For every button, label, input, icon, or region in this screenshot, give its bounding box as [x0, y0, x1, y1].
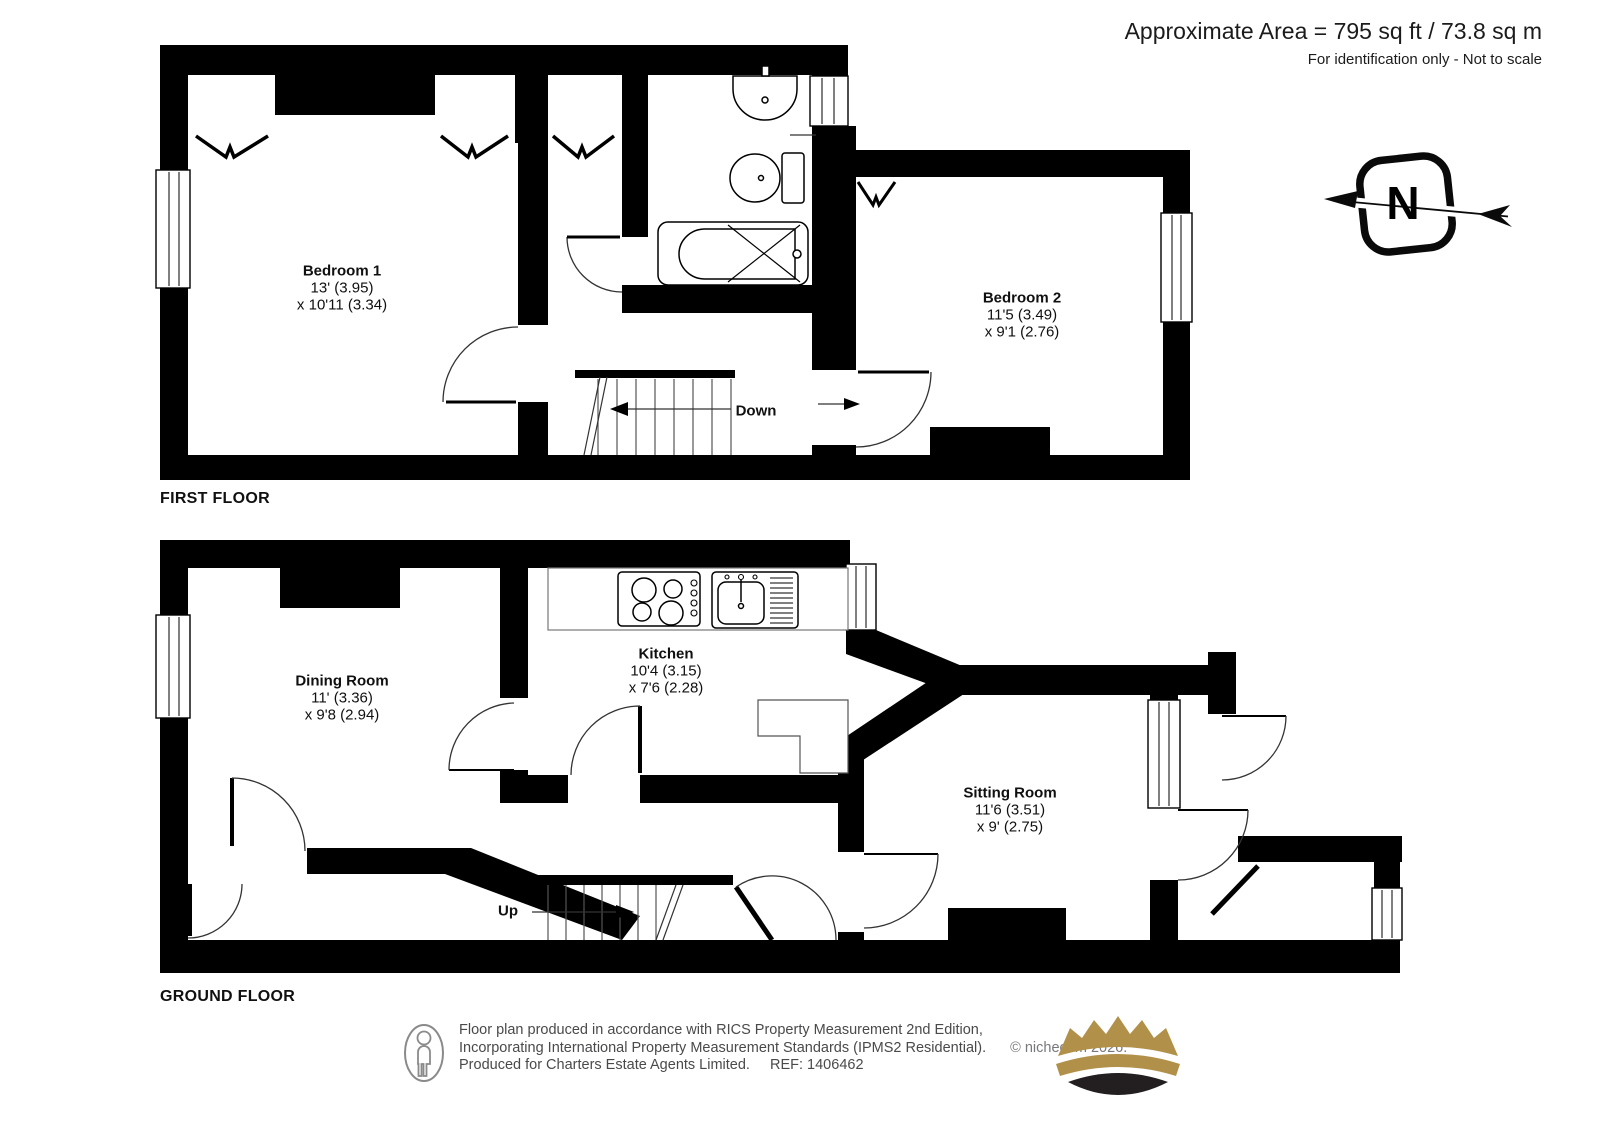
footer-line2: Incorporating International Property Mea… — [459, 1040, 1127, 1058]
room-name: Sitting Room — [963, 785, 1056, 802]
room-dimensions: 11' (3.36) — [295, 690, 388, 707]
stairs-up-label: Up — [498, 903, 518, 920]
door-porch — [1212, 866, 1258, 914]
room-dimensions: x 9' (2.75) — [963, 819, 1056, 836]
footer: Floor plan produced in accordance with R… — [402, 1022, 1127, 1084]
kitchen-step — [758, 700, 848, 773]
ground-floor-plan — [156, 540, 1402, 973]
approximate-area: Approximate Area = 795 sq ft / 73.8 sq m — [1125, 18, 1542, 45]
room-name: Bedroom 2 — [983, 290, 1061, 307]
room-label-sitting: Sitting Room 11'6 (3.51) x 9' (2.75) — [963, 785, 1056, 836]
window — [810, 76, 848, 126]
bathroom-fixtures — [658, 66, 808, 285]
toilet-icon — [730, 153, 804, 203]
door-hall-sitting — [736, 876, 836, 940]
ground-floor-title: GROUND FLOOR — [160, 988, 295, 1006]
door-dining-kitchen — [449, 703, 514, 770]
door-front — [188, 884, 242, 938]
person-icon — [402, 1022, 446, 1084]
room-dimensions: x 10'11 (3.34) — [297, 297, 387, 314]
window — [1161, 213, 1192, 322]
footer-text: Floor plan produced in accordance with R… — [459, 1022, 1127, 1084]
window — [1372, 888, 1402, 940]
room-label-bedroom2: Bedroom 2 11'5 (3.49) x 9'1 (2.76) — [983, 290, 1061, 341]
first-floor-title: FIRST FLOOR — [160, 490, 270, 508]
reference-number: REF: 1406462 — [770, 1057, 864, 1073]
stairs-down-label: Down — [736, 403, 777, 420]
dining-chimney-breast — [280, 568, 400, 608]
room-dimensions: 11'6 (3.51) — [963, 802, 1056, 819]
door-dining — [232, 778, 305, 851]
identification-note: For identification only - Not to scale — [1125, 51, 1542, 68]
door-sitting-lobby — [1178, 810, 1248, 880]
room-dimensions: x 7'6 (2.28) — [629, 680, 704, 697]
north-arrow-icon — [1322, 148, 1518, 260]
window — [156, 615, 190, 718]
hob-icon — [618, 572, 700, 626]
footer-line1: Floor plan produced in accordance with R… — [459, 1022, 1127, 1040]
room-label-bedroom1: Bedroom 1 13' (3.95) x 10'11 (3.34) — [297, 263, 387, 314]
compass-north-label: N — [1386, 176, 1419, 230]
footer-line2-text: Incorporating International Property Mea… — [459, 1040, 986, 1056]
crown-logo — [1052, 1012, 1184, 1096]
room-name: Bedroom 1 — [297, 263, 387, 280]
door-garden — [1222, 716, 1286, 780]
room-name: Dining Room — [295, 673, 388, 690]
header: Approximate Area = 795 sq ft / 73.8 sq m… — [1125, 18, 1542, 68]
room-dimensions: x 9'1 (2.76) — [983, 324, 1061, 341]
door-sitting — [864, 854, 938, 928]
sitting-chimney-breast — [948, 908, 1066, 940]
door-bedroom2 — [856, 372, 931, 447]
stairs-down — [584, 377, 731, 455]
stairs-down-arrow — [610, 402, 628, 416]
door-kitchen — [571, 706, 640, 775]
footer-line3: Produced for Charters Estate Agents Limi… — [459, 1057, 1127, 1075]
room-label-dining: Dining Room 11' (3.36) x 9'8 (2.94) — [295, 673, 388, 724]
window — [846, 564, 876, 630]
room-dimensions: 13' (3.95) — [297, 280, 387, 297]
room-dimensions: 11'5 (3.49) — [983, 307, 1061, 324]
room-label-kitchen: Kitchen 10'4 (3.15) x 7'6 (2.28) — [629, 646, 704, 697]
bath-icon — [658, 222, 808, 285]
produced-for: Produced for Charters Estate Agents Limi… — [459, 1057, 750, 1073]
window — [156, 170, 190, 288]
door-bathroom — [567, 237, 622, 292]
door-bedroom1 — [443, 327, 518, 402]
room-dimensions: x 9'8 (2.94) — [295, 707, 388, 724]
bedroom2-chimney-breast — [930, 427, 1050, 455]
floorplan-page: Approximate Area = 795 sq ft / 73.8 sq m… — [0, 0, 1600, 1131]
room-dimensions: 10'4 (3.15) — [629, 663, 704, 680]
window — [1148, 700, 1180, 808]
room-name: Kitchen — [629, 646, 704, 663]
ground-floor-doors — [188, 703, 1286, 940]
sink-icon — [712, 572, 798, 628]
